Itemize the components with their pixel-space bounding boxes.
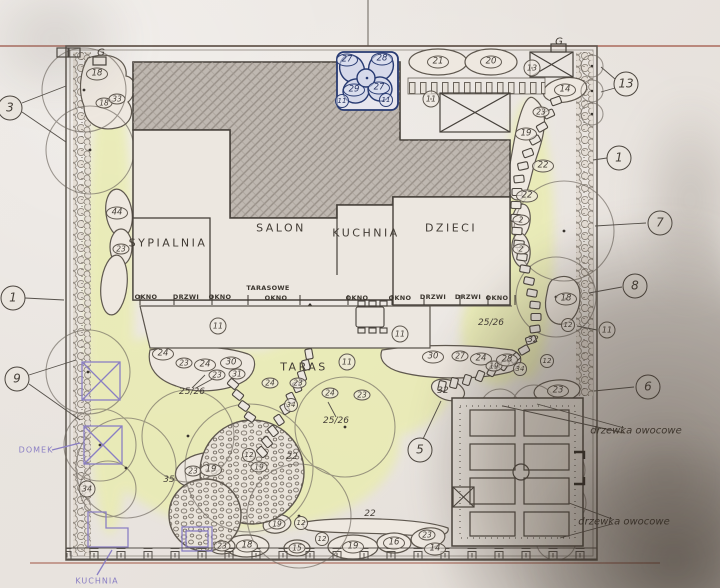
plant_group-19: 19 <box>251 462 268 473</box>
plant_group-24: 24 <box>152 348 174 361</box>
plant_group-11: 11 <box>379 93 393 107</box>
note-gas-mark-left: G <box>97 48 105 59</box>
plant_group-19: 19 <box>515 128 537 141</box>
plant_group-11: 11 <box>599 322 616 339</box>
wall_label-drzwi: DRZWI <box>173 293 199 301</box>
plant_group-23: 23 <box>354 390 371 401</box>
plant_group-27: 27 <box>336 54 358 67</box>
plant_group-44: 44 <box>106 207 128 220</box>
plant_group-12: 12 <box>315 532 329 546</box>
plant_group-18: 18 <box>86 68 108 81</box>
wall_label-tarasowe: TARASOWE <box>246 284 289 292</box>
plant_group-14: 14 <box>424 543 446 556</box>
plant_group-19: 19 <box>200 464 222 477</box>
plant_group-11: 11 <box>339 354 356 371</box>
plant_group-25-26: 25/26 <box>179 387 205 397</box>
garden-plan-photo: SYPIALNIASALONKUCHNIADZIECITARASOKNODRZW… <box>0 0 720 588</box>
note-gas-mark-right: G <box>555 37 563 48</box>
wall_label-okno: OKNO <box>486 294 509 302</box>
plant_group-18: 18 <box>236 540 258 553</box>
wall_label-okno: OKNO <box>209 293 232 301</box>
room-label-dzieci: DZIECI <box>425 222 477 235</box>
note-domek: DOMEK <box>19 446 54 455</box>
plant_group-28: 28 <box>371 53 393 66</box>
plant_group-11: 11 <box>392 326 409 343</box>
plant_group-34: 34 <box>513 362 527 376</box>
note-fruit-trees-2: drzewka owocowe <box>578 517 670 528</box>
plant_group-22: 22 <box>286 452 297 462</box>
plant_group-22: 22 <box>364 509 375 519</box>
plant_group-19: 19 <box>342 541 364 554</box>
callout-9: 9 <box>5 367 30 392</box>
plant_group-33: 33 <box>109 94 126 105</box>
plant_group-25-26: 25/26 <box>323 416 349 426</box>
callout-1: 1 <box>1 286 26 311</box>
plant_group-30: 30 <box>220 357 242 370</box>
plant_group-18: 18 <box>555 293 577 306</box>
plant_group-14: 14 <box>554 84 576 97</box>
callout-6: 6 <box>636 375 661 400</box>
plant_group-20: 20 <box>480 56 502 69</box>
plant_group-23: 23 <box>185 466 202 477</box>
plant_group-35: 35 <box>163 475 174 485</box>
plant_group-34: 34 <box>284 398 298 412</box>
plant_group-24: 24 <box>322 388 339 399</box>
plant_group-23: 23 <box>547 385 569 398</box>
plant_group-32: 32 <box>437 386 448 396</box>
plant_group-30: 30 <box>422 351 444 364</box>
plant_group-23: 23 <box>533 107 550 118</box>
wall_label-okno: OKNO <box>389 294 412 302</box>
room-label-salon: SALON <box>256 222 306 235</box>
plant_group-2: 2 <box>513 215 530 226</box>
callout-8: 8 <box>623 274 648 299</box>
plant_group-19: 19 <box>269 519 286 530</box>
wall_label-okno: OKNO <box>135 293 158 301</box>
plant_group-15: 15 <box>289 543 306 554</box>
plant_group-23: 23 <box>113 244 130 255</box>
plant_group-12: 12 <box>561 318 575 332</box>
plant_group-23: 23 <box>209 370 226 381</box>
plant_group-23: 23 <box>419 530 436 541</box>
plant_group-11: 11 <box>335 94 349 108</box>
area-label-taras: TARAS <box>280 361 328 374</box>
plant_group-23: 23 <box>214 541 231 552</box>
plant_group-12: 12 <box>540 354 554 368</box>
plant_group-2: 2 <box>513 244 530 255</box>
plant_group-22: 22 <box>516 190 538 203</box>
callout-5: 5 <box>408 438 433 463</box>
plant_group-24: 24 <box>262 378 279 389</box>
plant_group-32: 32 <box>527 335 538 345</box>
plant_group-12: 12 <box>294 516 308 530</box>
note-fruit-trees-1: drzewka owocowe <box>590 426 682 437</box>
callout-7: 7 <box>648 211 673 236</box>
wall_label-okno: OKNO <box>346 294 369 302</box>
plant_group-22: 22 <box>532 160 554 173</box>
plant_group-16: 16 <box>383 537 405 550</box>
callout-1: 1 <box>607 146 632 171</box>
plant_group-25-26: 25/26 <box>478 318 504 328</box>
wall_label-drzwi: DRZWI <box>420 293 446 301</box>
room-label-sypialnia: SYPIALNIA <box>129 237 208 250</box>
plant_group-21: 21 <box>427 56 449 69</box>
label-layer: SYPIALNIASALONKUCHNIADZIECITARASOKNODRZW… <box>0 0 720 588</box>
wall_label-okno: OKNO <box>265 294 288 302</box>
plant_group-27: 27 <box>452 351 469 362</box>
plant_group-12: 12 <box>242 448 256 462</box>
plant_group-13: 13 <box>524 60 541 77</box>
room-label-kuchnia: KUCHNIA <box>332 227 399 240</box>
plant_group-34: 34 <box>79 481 96 498</box>
plant_group-23: 23 <box>290 378 307 389</box>
callout-13: 13 <box>614 72 639 97</box>
callout-3: 3 <box>0 96 23 121</box>
wall_label-drzwi: DRZWI <box>455 293 481 301</box>
plant_group-23: 23 <box>176 358 193 369</box>
note-outdoor-kuchnia: KUCHNIA <box>75 577 118 586</box>
plant_group-11: 11 <box>210 318 227 335</box>
plant_group-11: 11 <box>423 91 440 108</box>
plant_group-31: 31 <box>229 369 246 380</box>
